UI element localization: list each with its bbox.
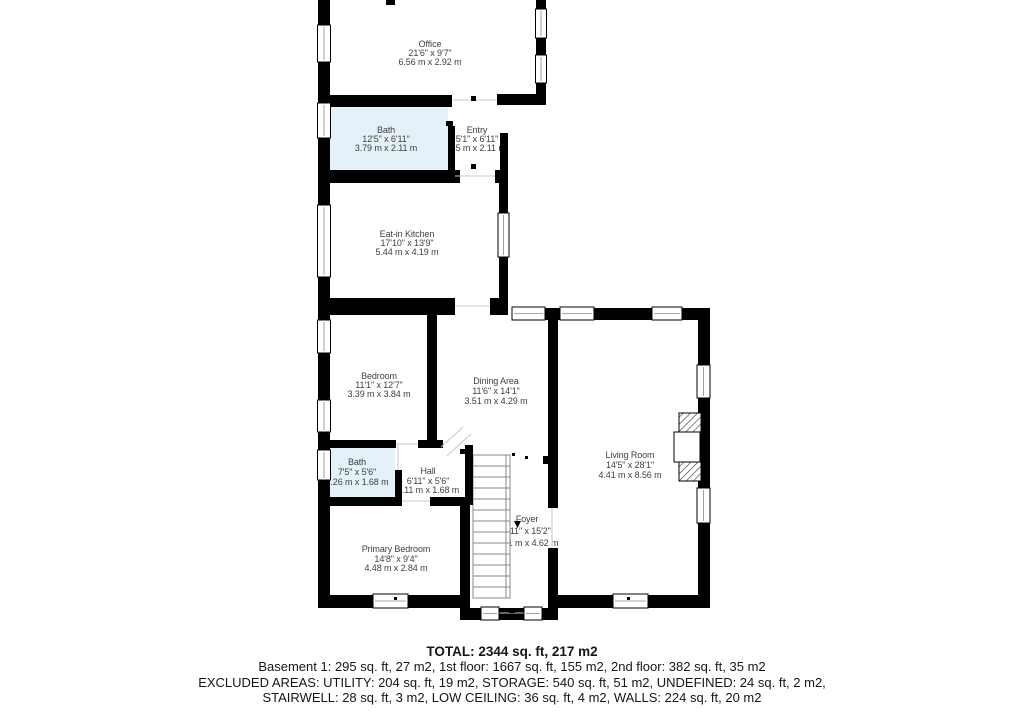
wall	[465, 445, 473, 505]
wall	[594, 308, 652, 320]
room-label-metric: 3.79 m x 2.11 m	[355, 143, 417, 153]
window-tick	[394, 597, 397, 600]
wall	[395, 470, 402, 500]
door-tick	[551, 579, 555, 583]
wall	[318, 440, 396, 448]
wall	[490, 298, 508, 315]
room-entry: Entry 5'1" x 6'11" .55 m x 2.11 m	[448, 125, 505, 153]
wall	[548, 315, 558, 508]
door-tick	[509, 610, 515, 613]
room-dining: Dining Area 11'6" x 14'1" 3.51 m x 4.29 …	[464, 376, 527, 406]
wall	[548, 548, 558, 620]
room-label-metric: 3.39 m x 3.84 m	[347, 389, 410, 399]
wall	[318, 95, 452, 107]
room-label-name: Hall	[420, 466, 435, 476]
wall	[499, 257, 508, 298]
room-label-name: Primary Bedroom	[362, 544, 431, 554]
room-label-metric: 5.44 m x 4.19 m	[375, 247, 438, 257]
room-label-metric: .55 m x 2.11 m	[448, 143, 505, 153]
wall	[497, 94, 546, 105]
wall	[318, 298, 455, 315]
door-tick	[543, 456, 548, 464]
wall	[318, 497, 402, 506]
room-label-metric: 3.51 m x 4.29 m	[464, 396, 527, 406]
room-label-metric: 6.56 m x 2.92 m	[398, 57, 461, 67]
room-hall: Hall 6'11" x 5'6" 2.11 m x 1.68 m	[397, 466, 459, 495]
wall	[430, 497, 470, 506]
room-bedroom: Bedroom 11'1" x 12'7" 3.39 m x 3.84 m	[347, 371, 410, 399]
door-tick	[446, 121, 453, 126]
wall	[495, 170, 508, 183]
room-label-metric: 2.11 m x 1.68 m	[397, 485, 459, 495]
summary-total: TOTAL: 2344 sq. ft, 217 m2	[0, 644, 1024, 659]
summary-floors: Basement 1: 295 sq. ft, 27 m2, 1st floor…	[0, 659, 1024, 674]
window-tick	[627, 597, 630, 600]
fireplace	[674, 413, 701, 481]
door-tick	[471, 96, 476, 101]
door-tick	[460, 449, 465, 454]
wall	[460, 608, 558, 620]
area-summary: TOTAL: 2344 sq. ft, 217 m2 Basement 1: 2…	[0, 644, 1024, 706]
room-label-metric: 4.48 m x 2.84 m	[364, 563, 427, 573]
room-label-metric: 4.41 m x 8.56 m	[598, 470, 661, 480]
room-primary-bedroom: Primary Bedroom 14'8" x 9'4" 4.48 m x 2.…	[362, 544, 431, 573]
door-tick	[512, 453, 515, 456]
wall	[448, 126, 455, 172]
floorplan-page: Office 21'6" x 9'7" 6.56 m x 2.92 m Bath…	[0, 0, 1024, 720]
door-tick	[386, 0, 395, 5]
room-label-dims: 11'6" x 14'1"	[472, 386, 519, 396]
room-living: Living Room 14'5" x 28'1" 4.41 m x 8.56 …	[598, 450, 661, 480]
wall	[460, 505, 470, 620]
wall	[318, 170, 460, 183]
summary-excluded-2: STAIRWELL: 28 sq. ft, 3 m2, LOW CEILING:…	[0, 690, 1024, 705]
room-label-dims: 7'5" x 5'6"	[338, 467, 376, 477]
door-tick	[471, 164, 476, 169]
wall	[418, 440, 443, 448]
wall	[427, 315, 437, 443]
floorplan-canvas: Office 21'6" x 9'7" 6.56 m x 2.92 m Bath…	[0, 0, 1024, 720]
wall	[499, 183, 508, 213]
room-label-metric: 2.26 m x 1.68 m	[325, 477, 388, 487]
room-label-name: Living Room	[606, 450, 655, 460]
room-kitchen: Eat-in Kitchen 17'10" x 13'9" 5.44 m x 4…	[375, 229, 438, 257]
door-tick	[525, 456, 528, 459]
room-label-dims: 14'5" x 28'1"	[606, 460, 654, 470]
room-label-name: Bath	[348, 457, 366, 467]
room-office: Office 21'6" x 9'7" 6.56 m x 2.92 m	[398, 39, 461, 67]
summary-excluded-1: EXCLUDED AREAS: UTILITY: 204 sq. ft, 19 …	[0, 675, 1024, 690]
room-label-name: Dining Area	[473, 376, 519, 386]
